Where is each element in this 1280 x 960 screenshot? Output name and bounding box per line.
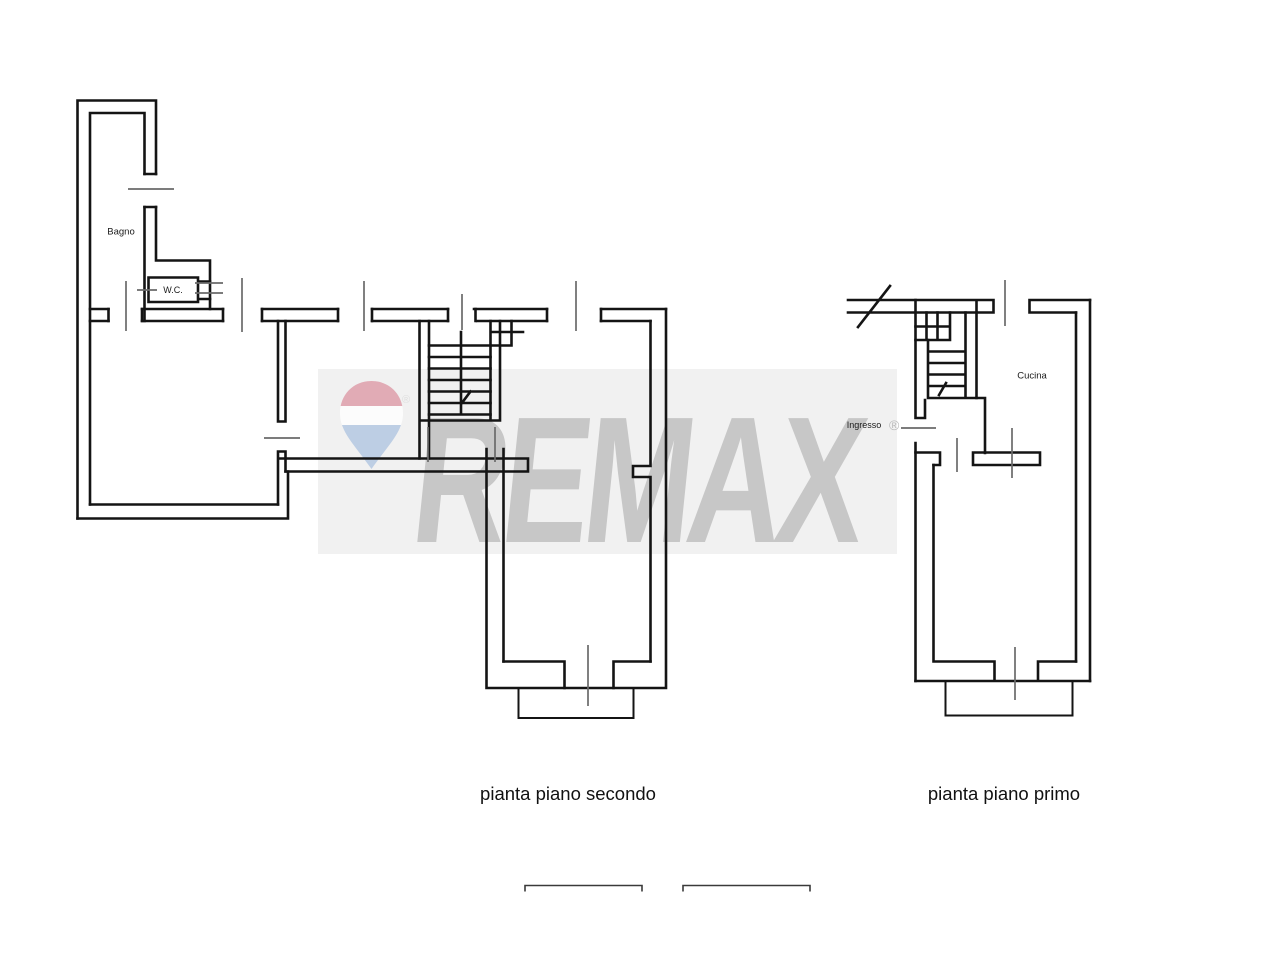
room-label-wc: W.C. xyxy=(163,285,183,295)
dimension-ticks xyxy=(126,189,1015,706)
floorplan-linework xyxy=(0,0,1280,960)
room-label-ingresso: Ingresso xyxy=(847,420,882,430)
floorplan-sheet: ® REMAX ® xyxy=(0,0,1280,960)
room-label-bagno: Bagno xyxy=(107,227,134,238)
caption-piano-primo: pianta piano primo xyxy=(928,783,1080,805)
balcony-primo xyxy=(946,681,1073,716)
caption-piano-secondo: pianta piano secondo xyxy=(480,783,656,805)
room-label-cucina: Cucina xyxy=(1017,371,1047,382)
plan-primo-walls xyxy=(848,286,1090,681)
balcony-secondo xyxy=(519,688,634,718)
scale-bar xyxy=(683,886,810,892)
scale-bars xyxy=(525,886,810,892)
scale-bar xyxy=(525,886,642,892)
